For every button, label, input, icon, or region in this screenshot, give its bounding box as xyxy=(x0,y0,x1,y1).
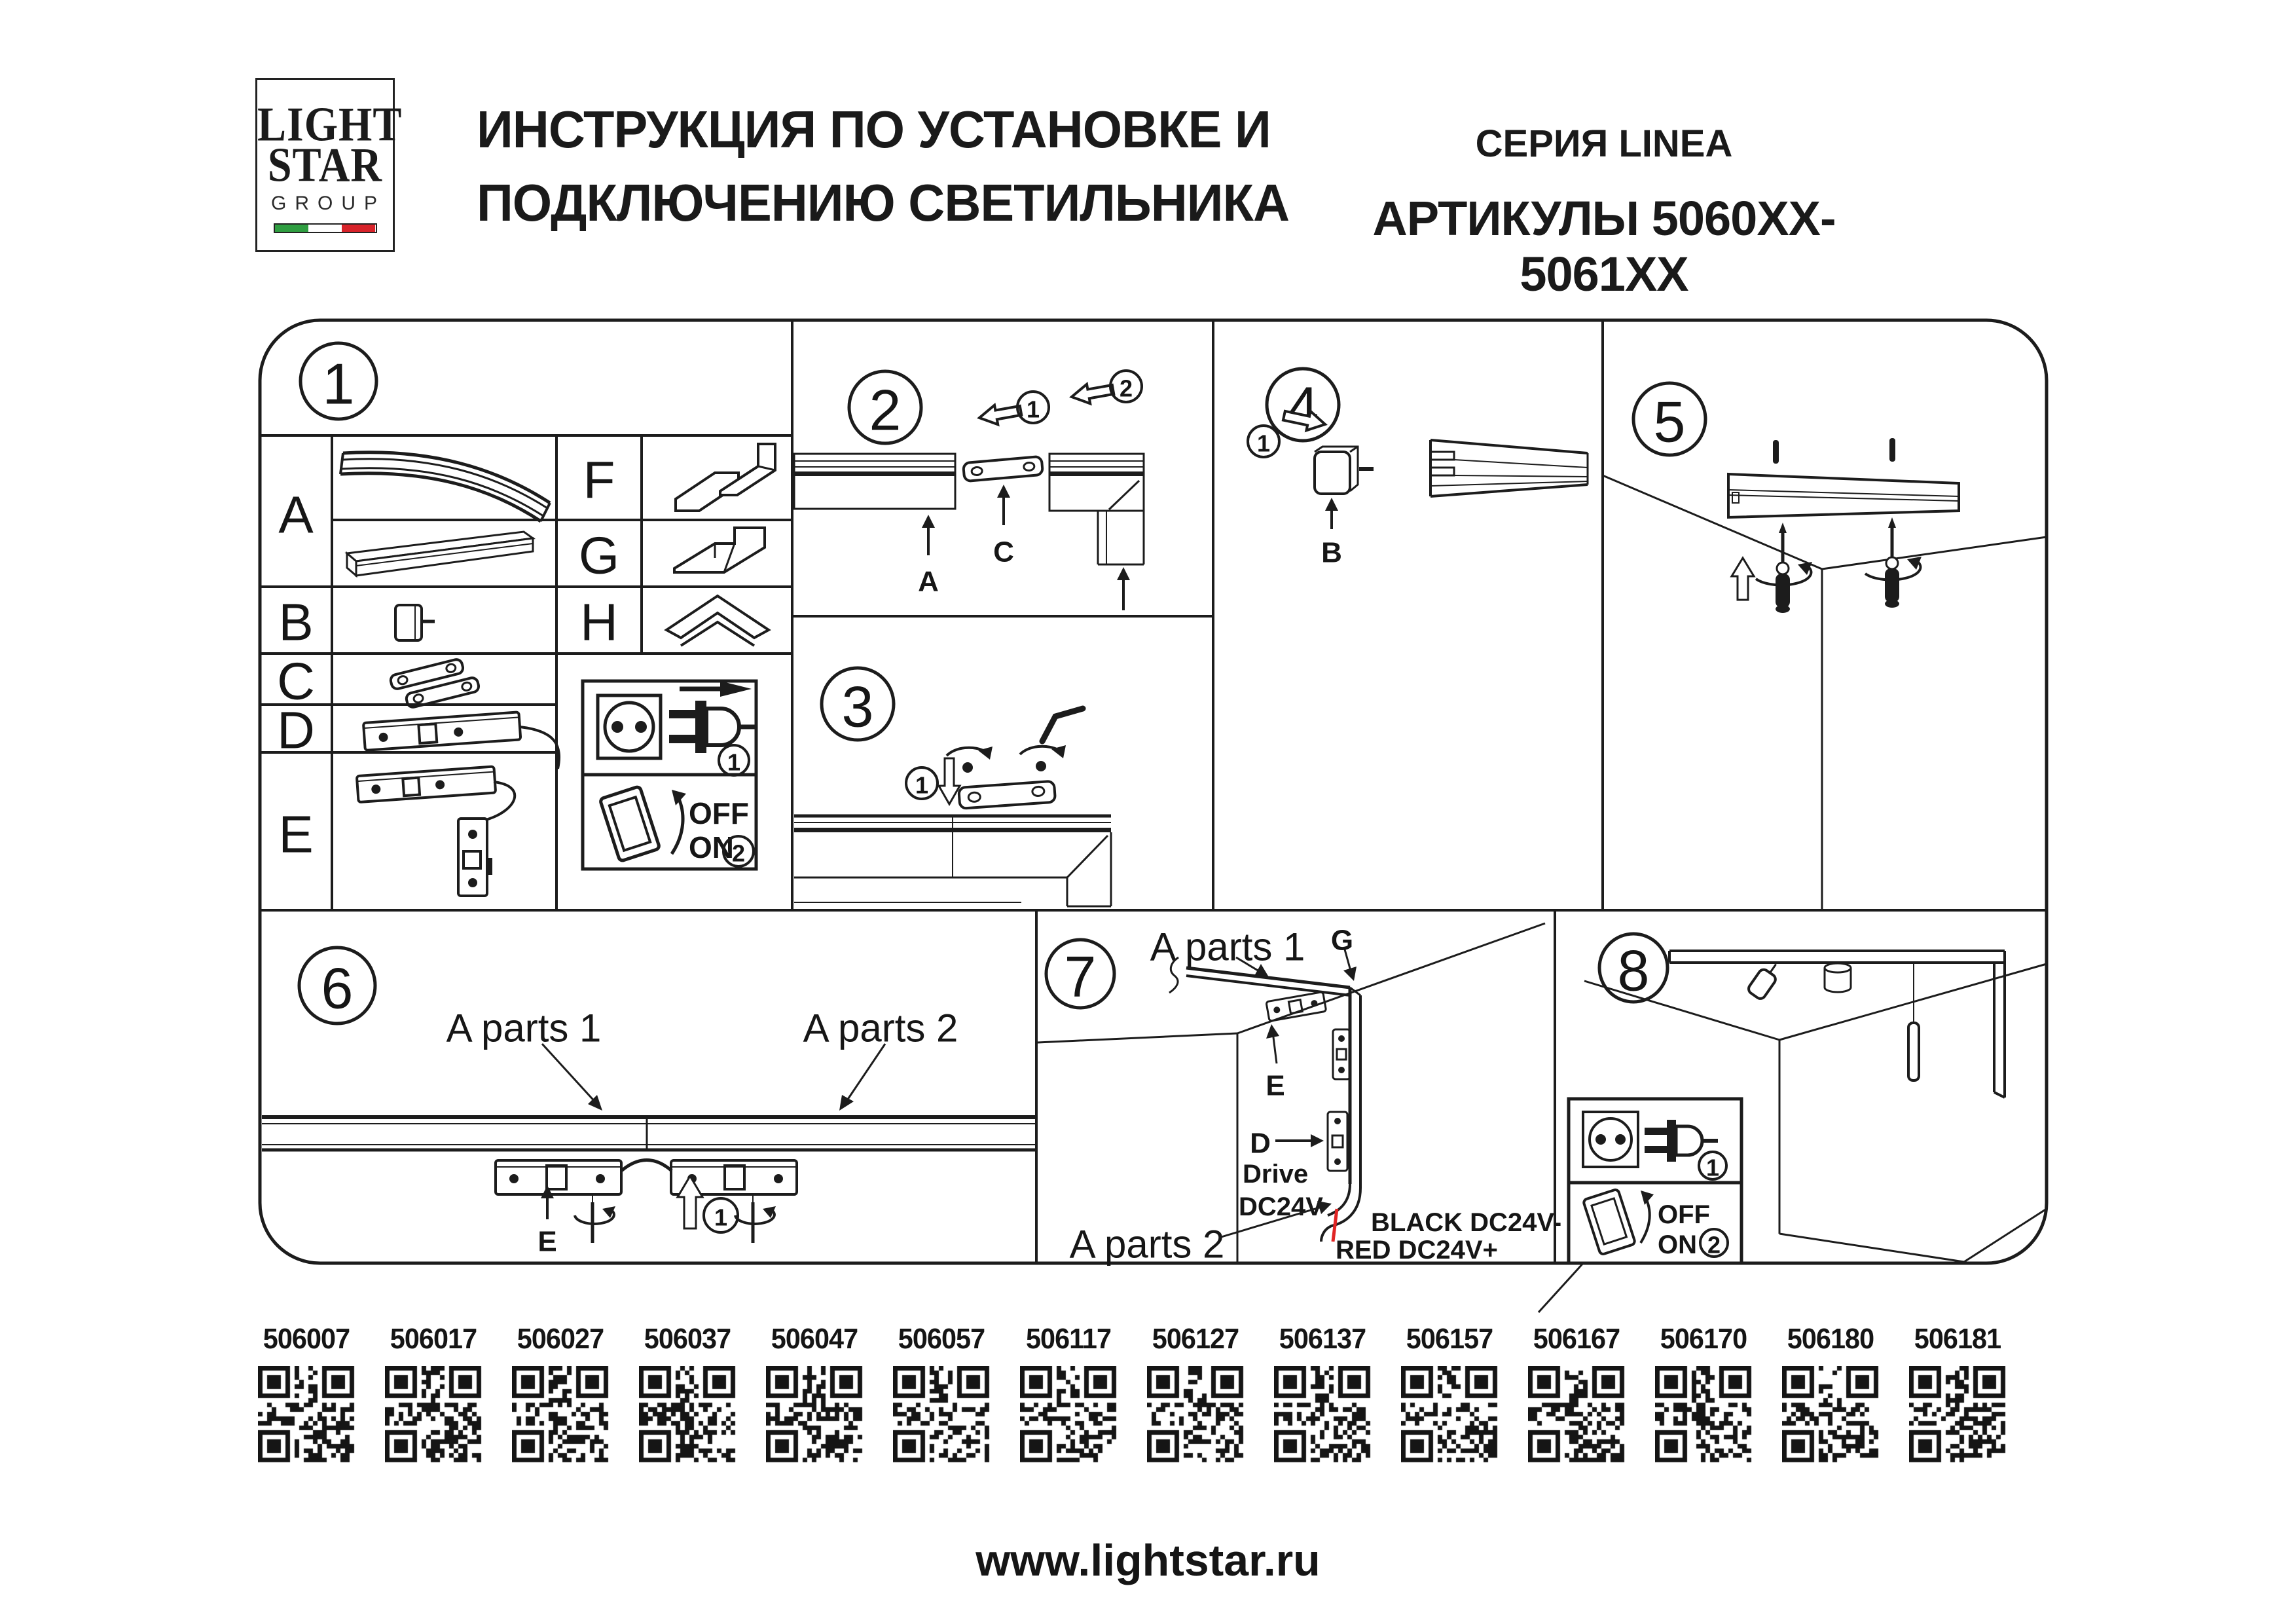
hex-key-icon xyxy=(1042,709,1083,741)
article-number: 506027 xyxy=(515,1323,607,1356)
part-letter-d: D xyxy=(277,701,315,760)
qr-code xyxy=(1655,1366,1752,1463)
part-e-driver-drawing xyxy=(357,767,515,896)
qr-item: 506017 xyxy=(384,1323,483,1463)
panel-3-badge: 3 xyxy=(822,668,894,740)
panel-4-badge: 4 xyxy=(1267,369,1339,441)
qr-item: 506137 xyxy=(1273,1323,1372,1463)
panel-8: 8 xyxy=(1539,934,2047,1312)
qr-item: 506127 xyxy=(1146,1323,1245,1463)
push-up-arrow-icon xyxy=(1732,558,1754,600)
power-connection-box-8: 1 OFF ON 2 xyxy=(1569,1099,1741,1263)
svg-text:1: 1 xyxy=(1027,396,1040,423)
strap-c-drawing xyxy=(963,456,1043,481)
drive-label: Drive xyxy=(1243,1160,1308,1189)
qr-code xyxy=(1147,1366,1244,1463)
plug-icon xyxy=(669,681,756,753)
svg-text:3: 3 xyxy=(842,674,874,739)
qr-code xyxy=(1909,1366,2006,1463)
joined-track-drawing xyxy=(794,816,1111,906)
qr-code xyxy=(258,1366,355,1463)
joined-tracks-drawing xyxy=(262,1117,1035,1150)
svg-text:7: 7 xyxy=(1065,944,1097,1009)
screw-icons xyxy=(1773,438,1895,464)
screwdriver-pin-right xyxy=(735,1196,776,1243)
qr-item: 506057 xyxy=(892,1323,991,1463)
puck-light-icon xyxy=(1825,963,1851,992)
article-number: 506157 xyxy=(1404,1323,1496,1356)
qr-item: 506027 xyxy=(511,1323,610,1463)
mounted-track-drawing xyxy=(1728,474,1959,517)
qr-item: 506167 xyxy=(1527,1323,1626,1463)
off-label: OFF xyxy=(689,796,749,830)
svg-text:1: 1 xyxy=(1257,430,1270,457)
connector-plates-drawing xyxy=(496,1160,797,1195)
article-number: 506127 xyxy=(1150,1323,1242,1356)
qr-item: 506170 xyxy=(1654,1323,1753,1463)
website-url: www.lightstar.ru xyxy=(0,1535,2296,1586)
dc24v-label: DC24V xyxy=(1239,1192,1323,1221)
qr-row: 506007 506017 506027 506037 506047 50605… xyxy=(257,1323,2007,1463)
a-parts-1-label: A parts 1 xyxy=(446,1006,602,1050)
panel-2: 2 1 2 xyxy=(794,371,1144,610)
article-number: 506167 xyxy=(1531,1323,1623,1356)
ceiling-corner-lines xyxy=(1603,475,2047,910)
svg-text:1: 1 xyxy=(915,772,928,799)
svg-text:1: 1 xyxy=(714,1204,727,1231)
qr-code xyxy=(1782,1366,1879,1463)
instruction-sheet: LIGHT STAR GROUP ИНСТРУКЦИЯ ПО УСТАНОВКЕ… xyxy=(0,0,2296,1624)
part-a-curved-track-drawing xyxy=(340,452,550,521)
switch-arrow xyxy=(672,795,683,854)
screwdriver-pin-left xyxy=(575,1196,615,1243)
article-number: 506017 xyxy=(388,1323,480,1356)
panel-5-badge: 5 xyxy=(1633,383,1705,455)
svg-text:B: B xyxy=(1321,537,1342,569)
label-d: D xyxy=(1250,1128,1271,1160)
part-f-connector-drawing xyxy=(676,444,775,511)
svg-text:A: A xyxy=(918,566,939,598)
panel-7: 7 A parts 1 G xyxy=(1038,923,1561,1266)
slide-arrow-1-icon xyxy=(977,401,1022,428)
panel-3: 3 1 xyxy=(794,668,1111,906)
off-label: OFF xyxy=(1658,1200,1710,1229)
qr-item: 506037 xyxy=(638,1323,737,1463)
panel-4: 4 1 B xyxy=(1248,369,1588,569)
screwdriver-icon-right xyxy=(1885,517,1899,608)
svg-text:E: E xyxy=(1266,1070,1285,1102)
qr-code xyxy=(1401,1366,1498,1463)
article-number: 506170 xyxy=(1658,1323,1750,1356)
svg-text:2: 2 xyxy=(1120,375,1133,402)
step-1-number: 1 xyxy=(727,749,740,776)
mid-connector-drawing xyxy=(1333,1029,1350,1079)
label-c-pointer: C xyxy=(993,485,1014,568)
panel-6-badge: 6 xyxy=(299,948,375,1024)
qr-code xyxy=(385,1366,482,1463)
part-letter-g: G xyxy=(579,526,619,585)
step-2-number: 2 xyxy=(732,840,745,867)
spot-light-icon xyxy=(1747,959,1783,1001)
article-number: 506137 xyxy=(1277,1323,1369,1356)
track-a-drawing xyxy=(794,454,955,509)
end-cap-b-drawing xyxy=(1315,447,1374,494)
qr-item: 506157 xyxy=(1400,1323,1499,1463)
qr-item: 506117 xyxy=(1019,1323,1118,1463)
panel-2-badge: 2 xyxy=(849,371,921,443)
part-letter-e: E xyxy=(278,805,313,864)
qr-item: 506180 xyxy=(1781,1323,1880,1463)
qr-code xyxy=(512,1366,609,1463)
part-b-end-cap-drawing xyxy=(395,605,435,640)
label-e-pointer: E xyxy=(538,1185,556,1258)
part-letter-b: B xyxy=(278,593,313,652)
a-parts-2-label: A parts 2 xyxy=(803,1006,958,1050)
push-up-arrow-icon xyxy=(678,1176,702,1228)
label-e-pointer: E xyxy=(1266,1024,1285,1102)
panel-1: 1 A B C D E F G H xyxy=(260,343,792,910)
qr-code xyxy=(766,1366,863,1463)
article-number: 506047 xyxy=(769,1323,861,1356)
on-label: ON xyxy=(1658,1230,1697,1259)
part-letter-h: H xyxy=(580,593,618,652)
qr-item: 506007 xyxy=(257,1323,355,1463)
article-number: 506007 xyxy=(261,1323,353,1356)
qr-code xyxy=(893,1366,990,1463)
svg-text:4: 4 xyxy=(1287,375,1319,440)
screwdriver-icon-left xyxy=(1776,523,1790,613)
part-letter-f: F xyxy=(583,451,615,509)
article-number: 506180 xyxy=(1785,1323,1877,1356)
press-down-arrow-icon xyxy=(939,758,960,804)
svg-text:6: 6 xyxy=(321,956,354,1021)
article-number: 506057 xyxy=(896,1323,988,1356)
e-connector-drawing xyxy=(1266,992,1326,1022)
qr-item: 506181 xyxy=(1908,1323,2007,1463)
socket-icon xyxy=(598,695,661,758)
track-profile-drawing xyxy=(1430,440,1588,496)
svg-text:1: 1 xyxy=(323,352,355,416)
slide-arrow-2-icon xyxy=(1070,380,1114,407)
part-h-corner-angle-drawing xyxy=(666,596,769,646)
article-number: 506181 xyxy=(1912,1323,2004,1356)
svg-text:C: C xyxy=(993,536,1014,568)
a-parts-2-label: A parts 2 xyxy=(1070,1223,1225,1266)
part-letter-a: A xyxy=(278,486,314,544)
label-g: G xyxy=(1331,925,1353,957)
label-a-pointer: A xyxy=(918,515,939,598)
power-connection-box: 1 OFF ON 2 xyxy=(583,681,756,869)
strap-with-screws-drawing xyxy=(947,709,1083,809)
article-number: 506037 xyxy=(642,1323,734,1356)
driver-d-drawing xyxy=(1328,1112,1347,1171)
corner-track-drawing xyxy=(1049,454,1144,564)
qr-code xyxy=(1274,1366,1371,1463)
panel-5: 5 xyxy=(1603,383,2047,910)
article-number: 506117 xyxy=(1023,1323,1115,1356)
part-a-straight-track-drawing xyxy=(347,532,533,576)
qr-code xyxy=(639,1366,736,1463)
part-g-corner-connector-drawing xyxy=(674,528,765,572)
qr-code xyxy=(1020,1366,1117,1463)
svg-text:1: 1 xyxy=(1706,1154,1719,1181)
svg-text:2: 2 xyxy=(1707,1232,1721,1259)
label-b-pointer: B xyxy=(1321,498,1342,569)
panel-1-badge: 1 xyxy=(301,343,376,419)
svg-text:5: 5 xyxy=(1654,390,1686,454)
part-d-driver-drawing xyxy=(363,712,559,769)
black-wire-label: BLACK DC24V- xyxy=(1371,1208,1561,1237)
switch-icon xyxy=(600,786,660,862)
panel-6: 6 A parts 1 A parts 2 xyxy=(262,948,1035,1258)
pendant-light-icon xyxy=(1908,964,1919,1080)
qr-code xyxy=(1528,1366,1625,1463)
part-c-straps-drawing xyxy=(390,658,480,708)
qr-item: 506047 xyxy=(765,1323,864,1463)
svg-text:E: E xyxy=(538,1226,556,1258)
svg-text:2: 2 xyxy=(869,378,902,443)
panel-8-badge: 8 xyxy=(1599,934,1667,1003)
red-wire-label: RED DC24V+ xyxy=(1336,1236,1498,1264)
panel-7-badge: 7 xyxy=(1046,940,1114,1009)
